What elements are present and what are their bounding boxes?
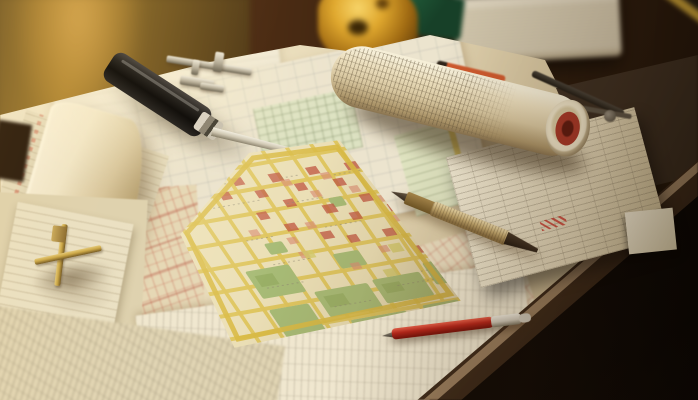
red-annotation-marks bbox=[540, 215, 568, 231]
photo-drafting-table-with-maps: Warm-toned photograph of a wooden drafti… bbox=[0, 0, 698, 400]
folded-paper-corner bbox=[625, 208, 677, 255]
rolled-drawing-red-core bbox=[553, 109, 583, 147]
brass-ornament-detail bbox=[348, 20, 368, 35]
brass-cross-head bbox=[51, 225, 67, 243]
brass-ornament-detail bbox=[376, 0, 389, 9]
red-pen-cap-end bbox=[518, 313, 531, 323]
divider-compass-joint bbox=[604, 110, 616, 122]
